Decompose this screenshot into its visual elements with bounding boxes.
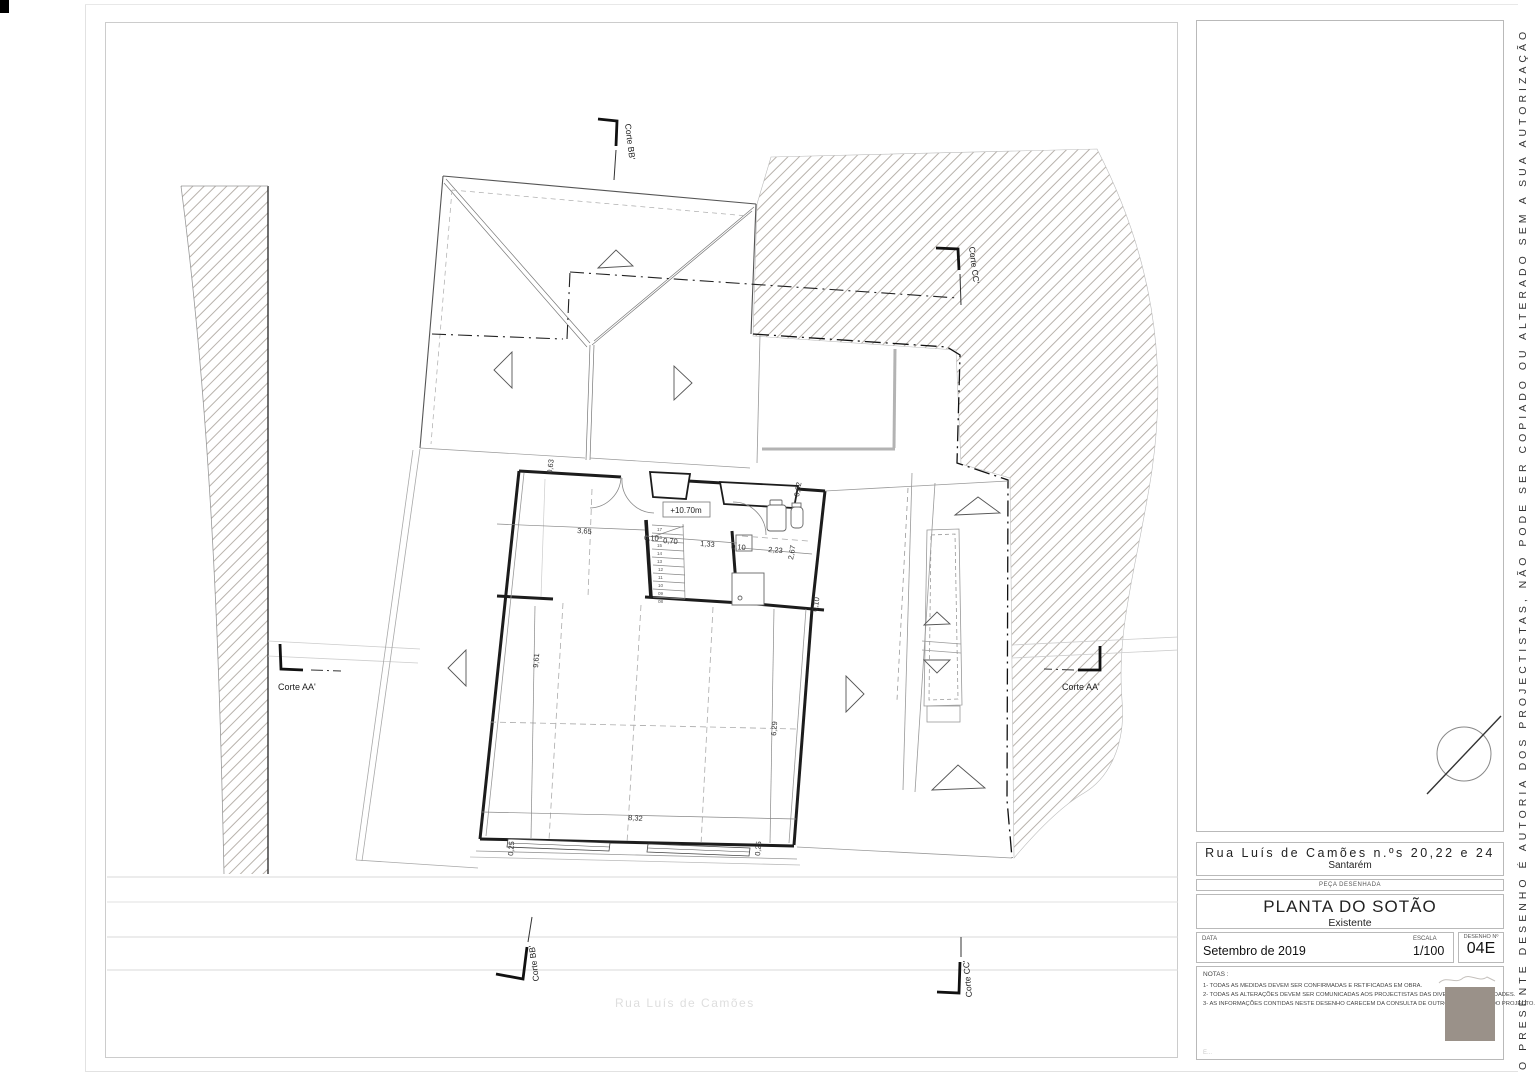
- address-line: Rua Luís de Camões n.ºs 20,22 e 24: [1197, 846, 1503, 860]
- stair-tread-label: 13: [657, 559, 663, 564]
- titleblock-notes: NOTAS : 1- TODAS AS MEDIDAS DEVEM SER CO…: [1196, 966, 1504, 1060]
- dimension-0-63: 0,63: [545, 459, 556, 475]
- note-line: 1- TODAS AS MEDIDAS DEVEM SER CONFIRMADA…: [1203, 983, 1422, 989]
- titleblock-empty-panel: [1196, 20, 1504, 832]
- slope-arrow-left: [494, 352, 512, 388]
- section-marker-bb-top: [598, 119, 617, 146]
- wall-inner-lines: [470, 473, 806, 865]
- dimension-0-25a: 0,25: [506, 841, 516, 856]
- copyright-disclaimer-vertical: O PRESENTE DESENHO É AUTORIA DOS PROJECT…: [1512, 0, 1534, 1070]
- stair-tread-label: 09: [658, 591, 664, 596]
- titleblock-date-scale: DATA Setembro de 2019 ESCALA 1/100: [1196, 932, 1454, 963]
- notes-label: NOTAS :: [1203, 971, 1229, 978]
- section-label-aa-left: Corte AA': [278, 682, 316, 692]
- slope-arrow-up-small: [924, 612, 950, 625]
- section-label-aa-right: Corte AA': [1062, 682, 1100, 692]
- dimension-3-65: 3,65: [577, 526, 592, 536]
- signature-scribble: [1437, 973, 1497, 987]
- roof-plan: [420, 176, 756, 468]
- faint-room-line: [541, 479, 545, 597]
- circle-slash-symbol: [1419, 706, 1509, 801]
- slope-arrow-up: [932, 765, 985, 790]
- courtyard-edge: [757, 335, 760, 463]
- peca-label: PEÇA DESENHADA: [1197, 880, 1503, 891]
- dimension-2-67: 2,67: [786, 544, 797, 560]
- slope-arrow-up: [598, 250, 633, 268]
- titleblock-address: Rua Luís de Camões n.ºs 20,22 e 24 Santa…: [1196, 842, 1504, 876]
- dimension-0-10b: 0,10: [731, 542, 746, 552]
- hatch-left-neighbour: [181, 186, 268, 874]
- stair-tread-label: 17: [657, 527, 663, 532]
- sink-tap: [770, 500, 782, 505]
- faint-street-lines: [107, 877, 1178, 970]
- underfloor-walls: [762, 349, 895, 449]
- sink: [767, 505, 786, 531]
- drawing-sheet: 17 16 15 14 13 12 11 10 09 08: [0, 0, 1535, 1080]
- drawing-title: PLANTA DO SOTÃO: [1197, 897, 1503, 917]
- dimension-0-62: 0,62: [792, 481, 803, 497]
- titleblock-drawing-number: DESENHO Nº 04E: [1458, 932, 1504, 963]
- slope-arrow-right: [846, 676, 864, 712]
- shower-drain: [738, 596, 742, 600]
- titleblock-peca: PEÇA DESENHADA: [1196, 879, 1504, 891]
- dimension-0-10: 0,10: [644, 533, 659, 543]
- address-city: Santarém: [1197, 860, 1503, 871]
- slope-arrow-down-small: [924, 660, 950, 673]
- scale-value: 1/100: [1413, 944, 1444, 958]
- street-label: Rua Luís de Camões: [615, 996, 755, 1010]
- section-marker-bb-bottom: [496, 947, 527, 979]
- dimension-1-33: 1,33: [700, 539, 715, 549]
- titleblock-drawing-title: PLANTA DO SOTÃO Existente: [1196, 894, 1504, 929]
- toilet-tank: [792, 503, 801, 507]
- scale-label: ESCALA: [1413, 936, 1437, 942]
- date-value: Setembro de 2019: [1203, 944, 1306, 958]
- section-label-bb-bottom: Corte BB': [527, 945, 541, 982]
- stair-tread-label: 12: [658, 567, 664, 572]
- dimension-6-29: 6,29: [769, 721, 779, 736]
- stair-tread-label: 11: [658, 575, 663, 580]
- stair-tread-label: 08: [658, 599, 664, 604]
- toilet: [791, 507, 803, 528]
- section-label-bb-top: Corte BB': [623, 123, 637, 160]
- dimension-2-23: 2,23: [768, 545, 783, 555]
- date-label: DATA: [1202, 936, 1217, 942]
- section-marker-cc-bottom: [937, 962, 960, 993]
- dimension-0-70: 0,70: [663, 536, 678, 546]
- stamp-placeholder: [1445, 987, 1495, 1041]
- dimension-0-25b: 0,25: [753, 841, 763, 856]
- slope-arrow-up: [955, 497, 1000, 515]
- dimension-lines: [482, 524, 812, 843]
- section-label-cc-bottom: Corte CC': [961, 960, 974, 998]
- stair-tread-label: 10: [658, 583, 664, 588]
- drawing-subtitle: Existente: [1197, 917, 1503, 929]
- stair-tread-label: 14: [657, 551, 663, 556]
- stair-tread-label: 15: [657, 543, 663, 548]
- dimension-8-32: 8,32: [628, 813, 643, 823]
- slope-arrow-right: [674, 366, 692, 400]
- drawing-number-value: 04E: [1459, 940, 1503, 958]
- dimension-9-61: 9,61: [531, 653, 541, 668]
- notes-footer-hint: E...: [1203, 1050, 1212, 1056]
- level-label: +10.70m: [670, 506, 702, 515]
- shower-tray: [732, 573, 764, 605]
- right-annex: [797, 473, 1012, 858]
- slope-arrow-left: [448, 650, 466, 686]
- hatch-terrain-right: [753, 149, 1158, 858]
